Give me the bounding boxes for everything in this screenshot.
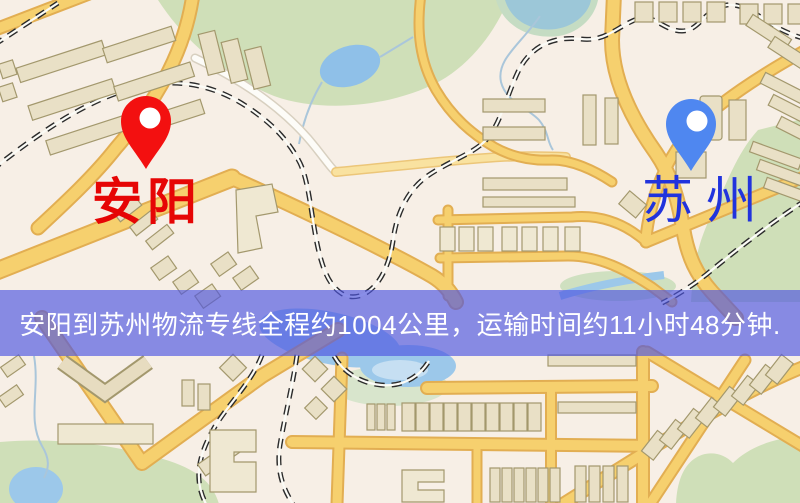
- destination-label: 苏州: [642, 175, 770, 226]
- origin-label: 安阳: [92, 177, 202, 227]
- route-info-text: 安阳到苏州物流专线全程约1004公里，运输时间约11小时48分钟.: [19, 305, 780, 342]
- map-canvas: [0, 0, 800, 503]
- map-screenshot: 安阳 苏州 安阳到苏州物流专线全程约1004公里，运输时间约11小时48分钟.: [0, 0, 800, 503]
- route-info-banner: 安阳到苏州物流专线全程约1004公里，运输时间约11小时48分钟.: [0, 290, 800, 356]
